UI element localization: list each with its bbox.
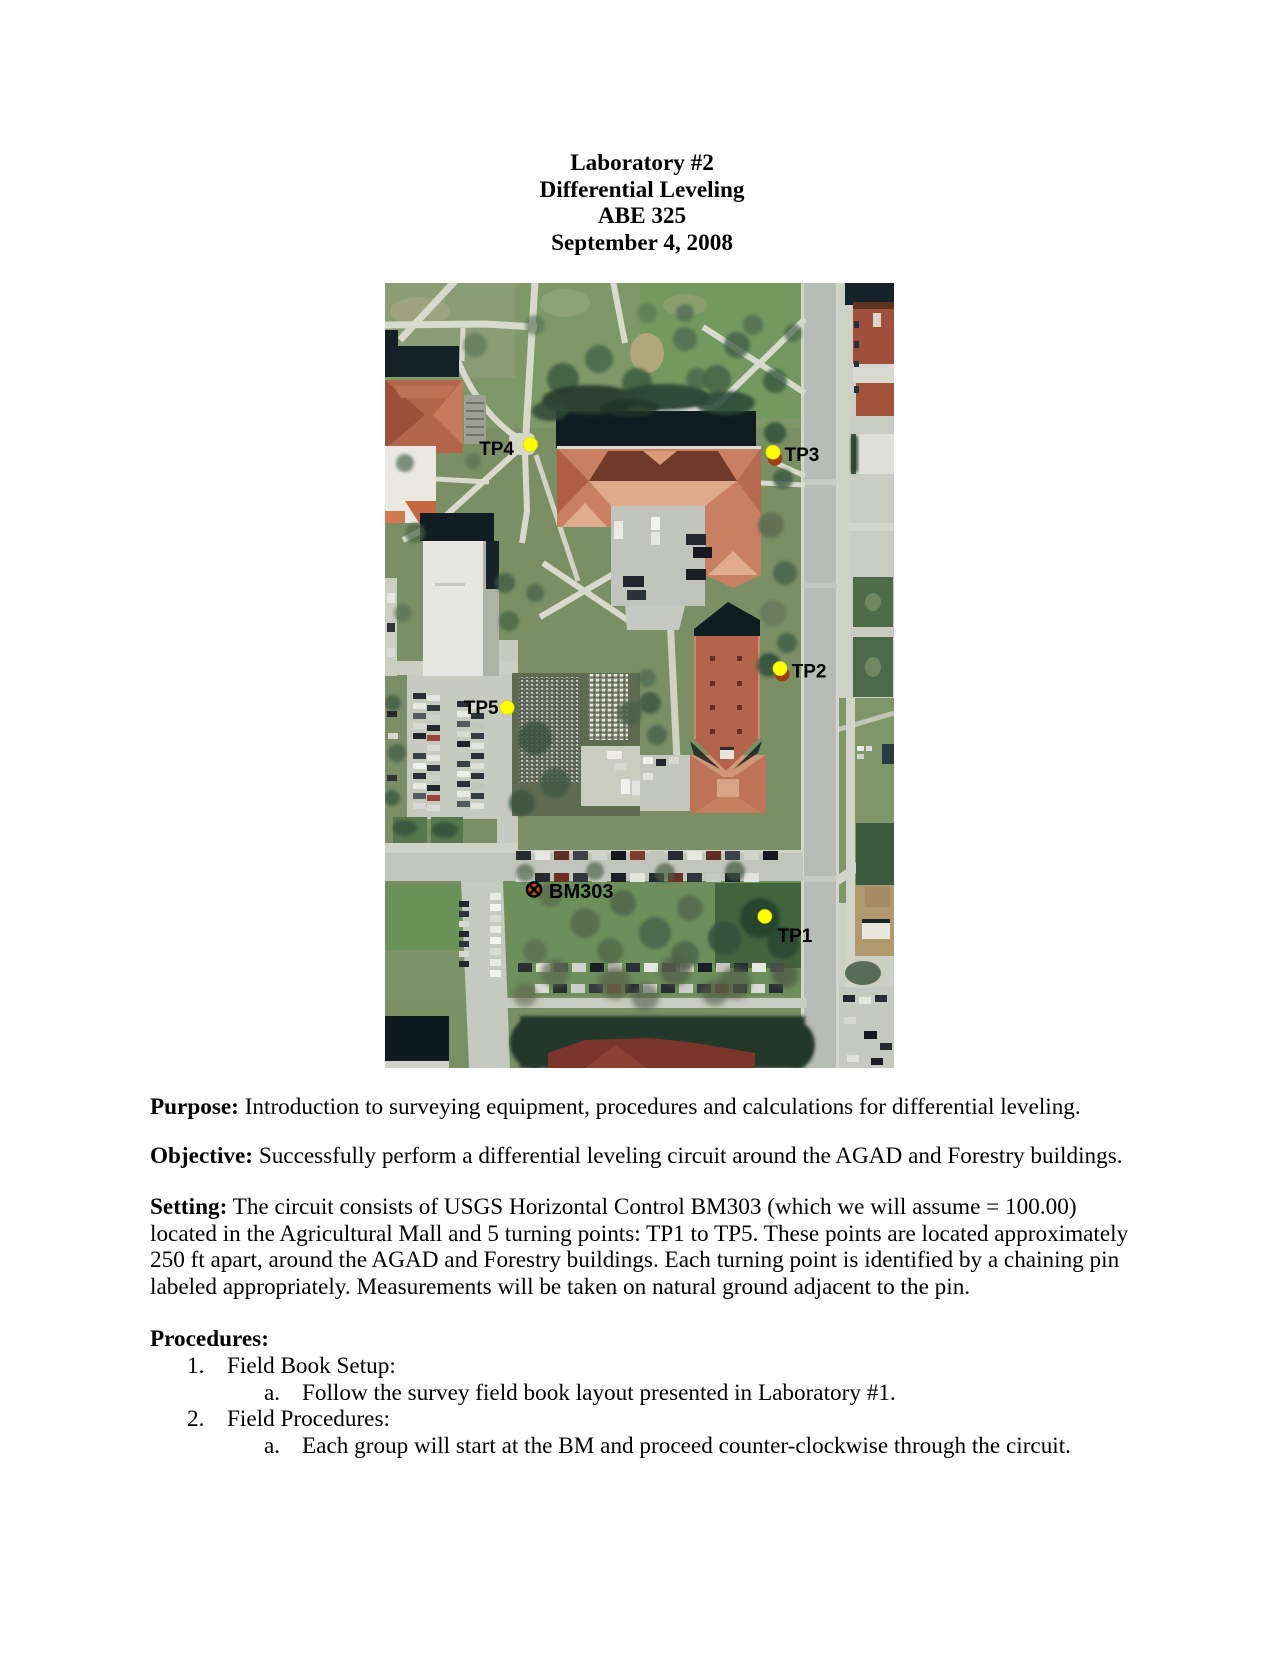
svg-text:TP5: TP5 (464, 698, 499, 719)
svg-text:BM303: BM303 (549, 881, 613, 903)
svg-text:TP1: TP1 (778, 926, 813, 947)
svg-text:TP4: TP4 (479, 439, 514, 460)
svg-text:TP3: TP3 (785, 445, 820, 466)
svg-text:TP2: TP2 (792, 661, 827, 682)
